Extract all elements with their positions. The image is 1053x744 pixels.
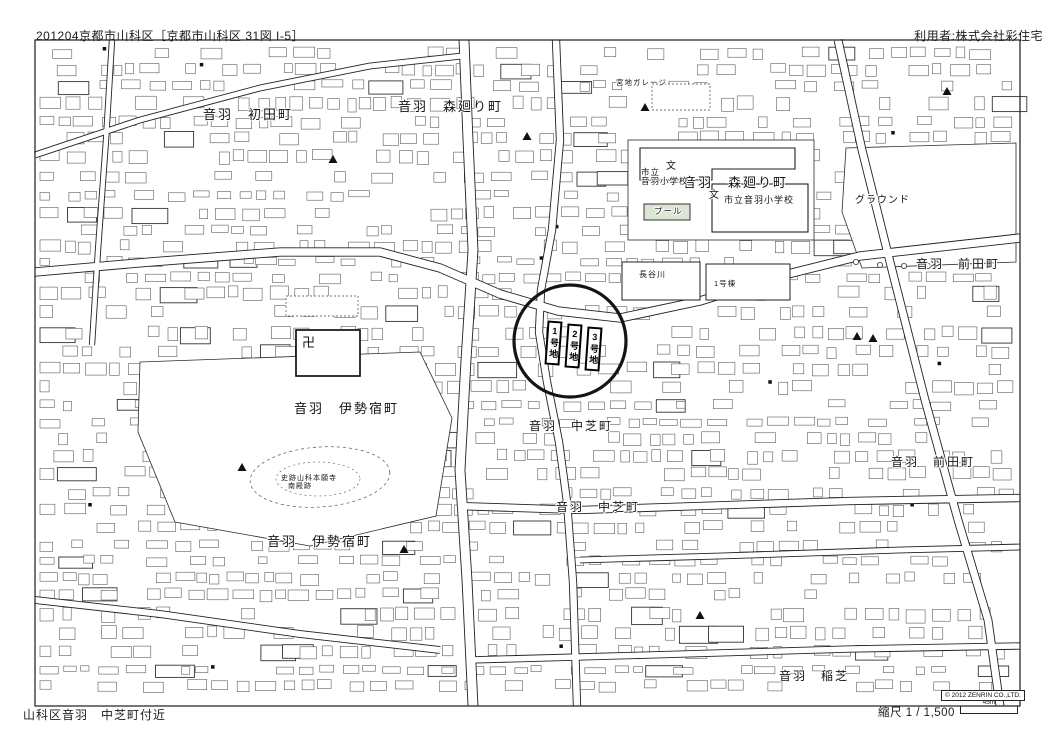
map-annotation-label: 南殿跡 <box>288 483 312 490</box>
district-label: 音羽 前田町 <box>891 456 975 468</box>
district-label: 音羽 伊勢宿町 <box>267 535 372 548</box>
school-symbol-icon: 文 <box>709 191 719 201</box>
survey-triangle-icon <box>523 132 532 140</box>
map-annotation-label: 長谷川 <box>639 271 666 279</box>
scale-bar: 45m <box>960 701 1018 714</box>
school-symbol-icon: 文 <box>666 162 676 172</box>
district-label: 音羽 森廻り町 <box>683 176 788 189</box>
district-label: 音羽 前田町 <box>916 258 1000 270</box>
map-annotation-label: グラウンド <box>855 196 910 206</box>
annotation-box <box>652 84 710 110</box>
map-annotation-label: 音羽小学校 <box>641 177 689 186</box>
school-building <box>712 184 808 232</box>
map-canvas: © 2012 ZENRIN CO.,LTD. 音羽 初田町音羽 森廻り町音羽 森… <box>0 0 1053 744</box>
district-label: 音羽 初田町 <box>203 108 293 121</box>
map-annotation-label: 宮地ガレージ <box>616 79 667 87</box>
map-annotation-label: 史跡山科本願寺 <box>281 475 337 482</box>
lot-marker: 1号地 <box>544 321 562 366</box>
copyright-box: © 2012 ZENRIN CO.,LTD. <box>941 690 1025 701</box>
map-sheet: 201204京都市山科区［京都市山科区 31図 I-5］ 利用者:株式会社彩住宅… <box>0 0 1053 744</box>
tree-icon <box>877 262 882 267</box>
lot-marker: 2号地 <box>564 324 582 369</box>
lot-marker: 3号地 <box>584 327 602 372</box>
district-label: 音羽 中芝町 <box>556 501 640 513</box>
district-label: 音羽 伊勢宿町 <box>294 402 399 415</box>
tree-icon <box>853 259 858 264</box>
scale-bar-line <box>960 706 1018 714</box>
scale-text: 縮尺 1 / 1,500 <box>878 704 955 720</box>
survey-triangle-icon <box>869 334 878 342</box>
district-label: 音羽 中芝町 <box>529 420 613 432</box>
district-label: 音羽 稲芝 <box>779 670 849 682</box>
footer-location: 山科区音羽 中芝町付近 <box>23 706 166 723</box>
temple-symbol-icon: 卍 <box>302 336 315 349</box>
map-drawing <box>0 0 1053 744</box>
map-annotation-label: 1号棟 <box>714 280 736 288</box>
survey-triangle-icon <box>641 103 650 111</box>
survey-triangle-icon <box>696 611 705 619</box>
tree-icon <box>901 263 906 268</box>
apartment-block <box>622 262 700 300</box>
map-annotation-label: プール <box>654 207 683 216</box>
map-annotation-label: 市立音羽小学校 <box>724 196 794 205</box>
district-label: 音羽 森廻り町 <box>398 100 503 113</box>
annotation-box <box>286 296 358 316</box>
